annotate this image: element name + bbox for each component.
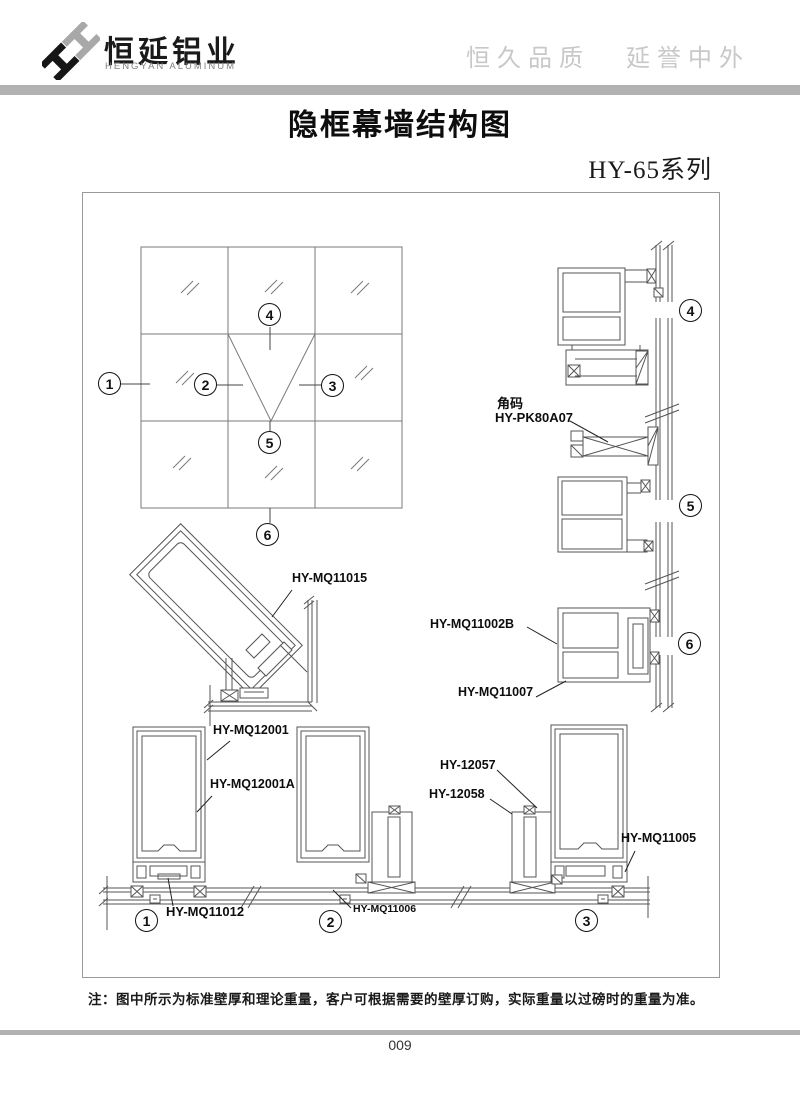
callout-circle-1: 1 (98, 372, 121, 395)
part-label-mq11006: HY-MQ11006 (353, 904, 416, 916)
slogan-right: 延誉中外 (626, 38, 750, 73)
part-label-mq11012: HY-MQ11012 (166, 905, 244, 919)
section-circle-5: 5 (679, 494, 702, 517)
section-circle-4: 4 (679, 299, 702, 322)
company-logo-icon (42, 22, 100, 80)
part-label-hy12057: HY-12057 (440, 759, 496, 773)
part-label-mq11002b: HY-MQ11002B (430, 618, 514, 632)
section-circle-2: 2 (319, 910, 342, 933)
callout-circle-6: 6 (256, 523, 279, 546)
page-title: 隐框幕墙结构图 (0, 100, 800, 144)
part-label-mq11005: HY-MQ11005 (621, 832, 696, 846)
catalog-page: 恒延铝业 HENGYAN ALUMINUM 恒久品质 延誉中外 隐框幕墙结构图 … (0, 0, 800, 1093)
company-name-en: HENGYAN ALUMINUM (105, 61, 236, 72)
callout-circle-4: 4 (258, 303, 281, 326)
section-circle-1: 1 (135, 909, 158, 932)
footer-divider-bar (0, 1030, 800, 1035)
footnote: 注：图中所示为标准壁厚和理论重量，客户可根据需要的壁厚订购，实际重量以过磅时的重… (88, 988, 704, 1008)
part-label-mq11015: HY-MQ11015 (292, 572, 367, 586)
part-label-mq11007: HY-MQ11007 (458, 686, 533, 700)
series-label: HY-65系列 (588, 150, 712, 186)
part-label-mq12001a: HY-MQ12001A (210, 778, 295, 792)
section-circle-6: 6 (678, 632, 701, 655)
callout-circle-3: 3 (321, 374, 344, 397)
part-label-mq12001: HY-MQ12001 (213, 724, 289, 738)
part-label-hy12058: HY-12058 (429, 788, 485, 802)
callout-circle-2: 2 (194, 373, 217, 396)
section-circle-3: 3 (575, 909, 598, 932)
drawing-frame (82, 192, 720, 978)
callout-circle-5: 5 (258, 431, 281, 454)
page-number: 009 (0, 1037, 800, 1053)
corner-code-model: HY-PK80A07 (495, 411, 573, 425)
header-slogan: 恒久品质 延誉中外 (466, 38, 750, 73)
slogan-left: 恒久品质 (466, 38, 590, 73)
header-divider-bar (0, 85, 800, 95)
